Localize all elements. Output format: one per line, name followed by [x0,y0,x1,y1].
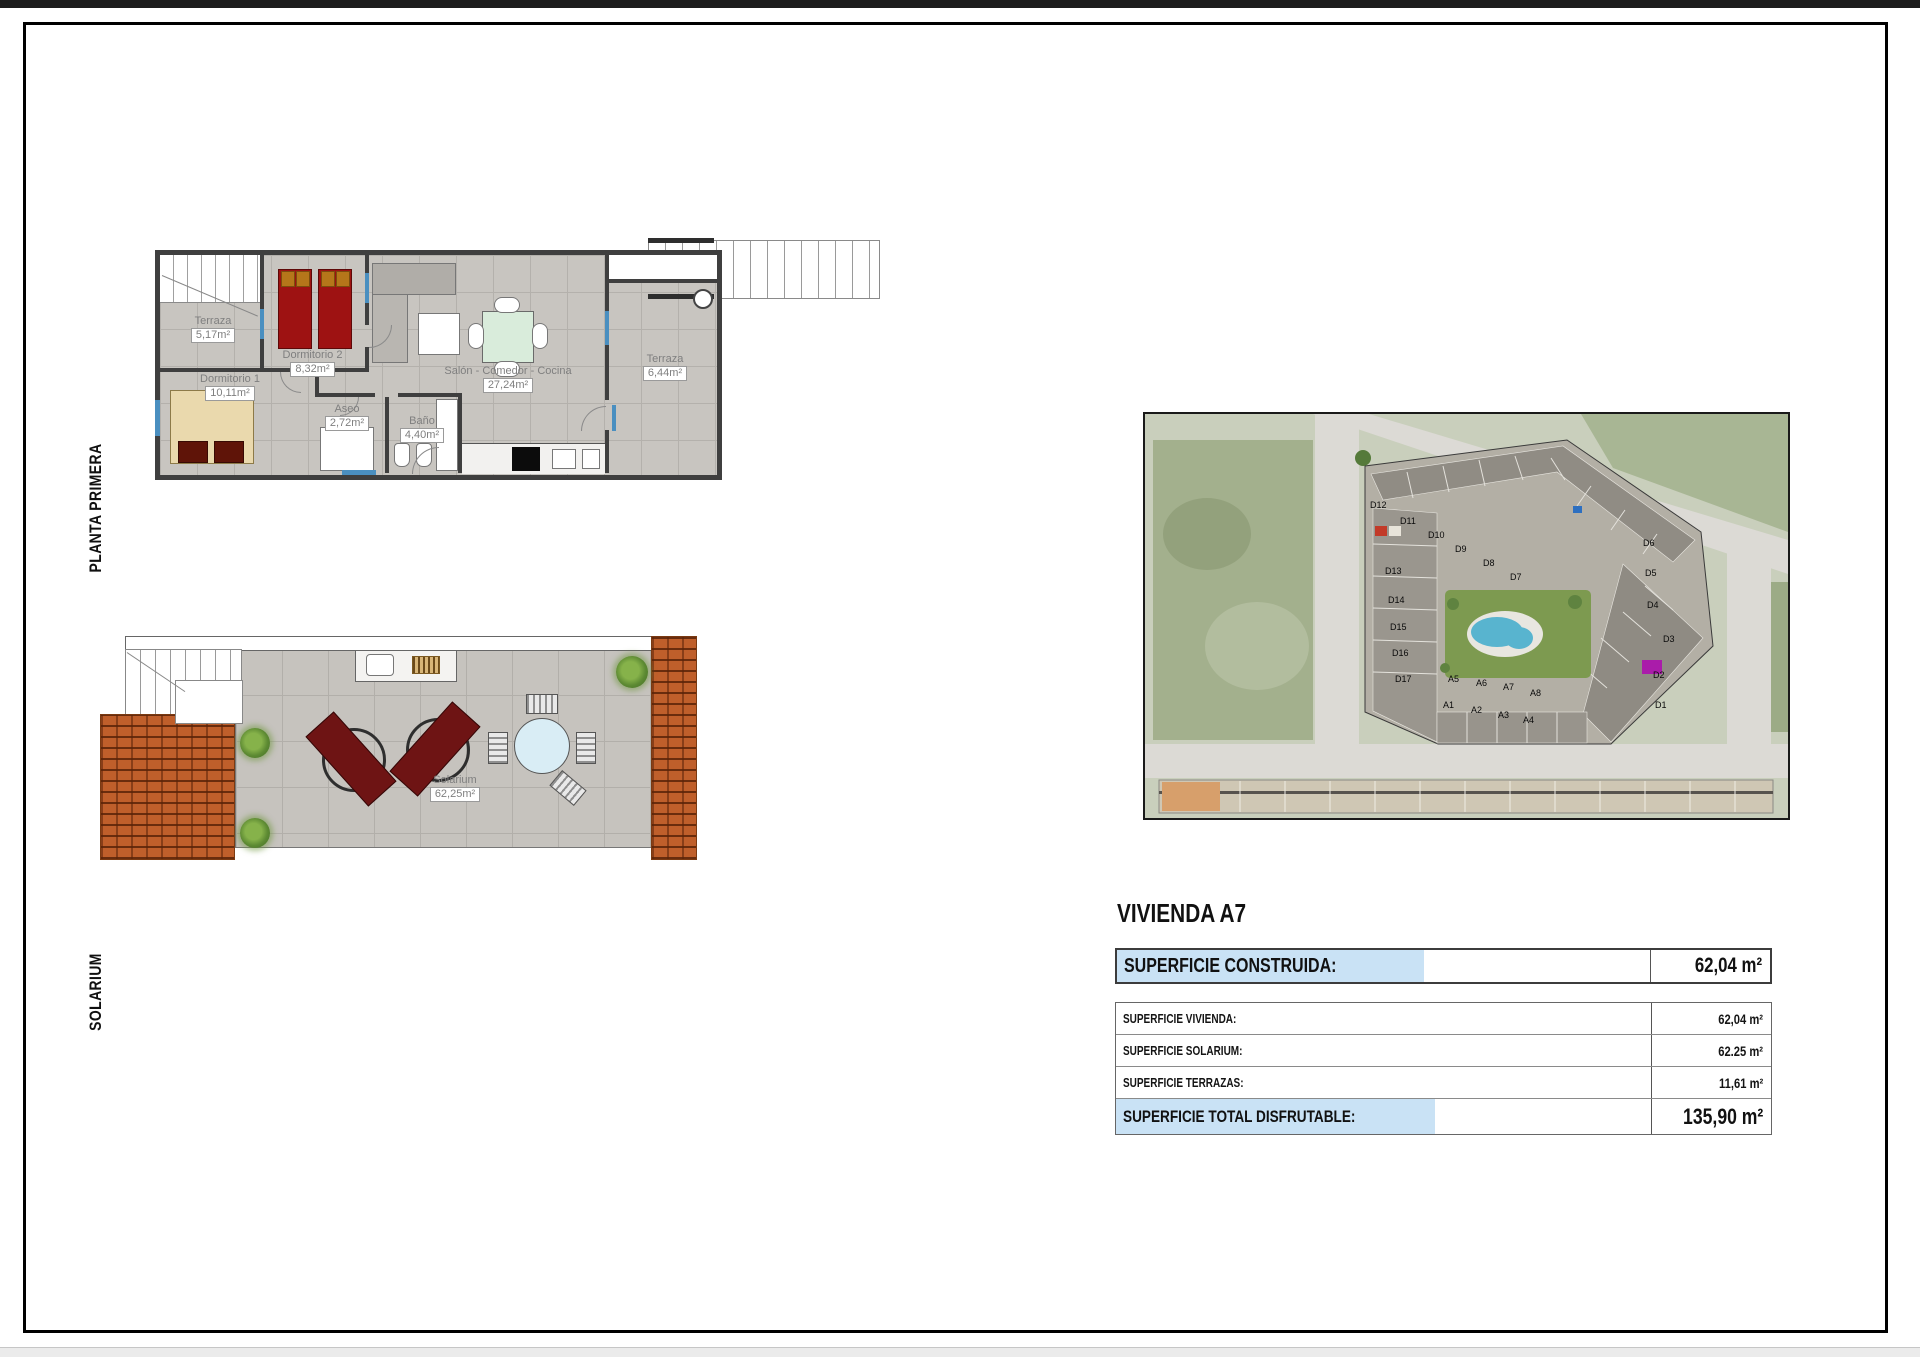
bottom-edge-strip [0,1347,1920,1357]
map-unit-label: D6 [1643,538,1655,548]
map-unit-label: D5 [1645,568,1657,578]
map-unit-label: D11 [1400,516,1416,526]
map-unit-label: D8 [1483,558,1495,568]
dining-chair [532,323,548,349]
row-label: SUPERFICIE TERRAZAS: [1116,1067,1651,1098]
ceiling-light [693,289,713,309]
pillow [178,441,208,463]
room-label-aseo: Aseo 2,72m² [302,403,392,431]
terraza-setback [609,255,717,279]
floorplan-solarium: Solarium 62,25m² [100,636,695,858]
table-row-vivienda: SUPERFICIE VIVIENDA: 62,04 m² [1116,1003,1771,1035]
roof-tiles-left [100,714,235,860]
superficie-construida-label: SUPERFICIE CONSTRUIDA: [1117,950,1424,982]
stove [512,447,540,471]
table-row-total: SUPERFICIE TOTAL DISFRUTABLE: 135,90 m² [1116,1099,1771,1134]
row-value: 11,61 m² [1651,1067,1771,1098]
roof-tiles-right [651,636,697,860]
map-unit-label: A1 [1443,700,1454,710]
map-unit-label: D9 [1455,544,1467,554]
pillow [321,271,335,287]
room-label-dormitorio1: Dormitorio 1 10,11m² [170,373,290,401]
wall [398,393,462,397]
room-label-salon: Salón - Comedor - Cocina 27,24m² [418,365,598,393]
shower [320,427,374,471]
total-label: SUPERFICIE TOTAL DISFRUTABLE: [1116,1099,1435,1134]
window [260,309,264,339]
summary-title: VIVIENDA A7 [1117,898,1278,929]
room-label-terraza2: Terraza 6,44m² [620,353,710,381]
chair [526,694,558,714]
map-unit-label: D17 [1395,674,1412,684]
room-label-terraza1: Terraza 5,17m² [168,315,258,343]
superficie-construida-row: SUPERFICIE CONSTRUIDA: 62,04 m² [1115,948,1772,984]
wall [609,279,717,283]
top-edge-strip [0,0,1920,8]
wall [605,430,609,473]
map-unit-label: A3 [1498,710,1509,720]
window [342,470,376,475]
map-unit-label: D12 [1370,500,1387,510]
table-row-solarium: SUPERFICIE SOLARIUM: 62.25 m² [1116,1035,1771,1067]
row-value: 62.25 m² [1651,1035,1771,1066]
stair-landing-edge [648,238,714,243]
planta-primera-label: PLANTA PRIMERA [86,444,106,573]
pillow [296,271,310,287]
stairs-landing [175,680,243,724]
map-unit-label: D14 [1388,595,1405,605]
window [365,273,369,303]
map-unit-label: A2 [1471,705,1482,715]
row-label: SUPERFICIE SOLARIUM: [1116,1035,1651,1066]
map-unit-label: D3 [1663,634,1675,644]
dishwasher [582,449,600,469]
chair [488,732,508,764]
dining-chair [494,297,520,313]
window-door-terraza [612,405,616,431]
pillow [336,271,350,287]
room-label-bano: Baño 4,40m² [382,415,462,443]
dining-table [482,311,534,363]
solarium-section-label: SOLARIUM [86,953,106,1031]
map-unit-label: D10 [1428,530,1445,540]
plant [616,656,648,688]
sink [552,449,576,469]
row-spacer [1435,1099,1651,1134]
map-unit-label: D1 [1655,700,1667,710]
outdoor-sink [366,654,394,676]
window [155,400,160,436]
pillow [214,441,244,463]
door-arc-terraza [581,406,606,431]
aerial-site-map: D12 D11 D10 D9 D8 D7 D13 D14 D15 D16 D17… [1143,412,1790,820]
map-unit-label-a7: A7 [1503,682,1514,692]
window [605,311,609,345]
plant [240,728,270,758]
table-row-terrazas: SUPERFICIE TERRAZAS: 11,61 m² [1116,1067,1771,1099]
map-unit-label: A6 [1476,678,1487,688]
map-unit-label: D15 [1390,622,1407,632]
coffee-table [418,313,460,355]
toilet [394,443,410,467]
map-unit-label: A5 [1448,674,1459,684]
chair [576,732,596,764]
sofa-chaise [372,263,456,295]
barbecue-grill [412,656,440,674]
total-value: 135,90 m² [1651,1099,1771,1134]
pillow [281,271,295,287]
row-label: SUPERFICIE VIVIENDA: [1116,1003,1651,1034]
map-unit-label: D13 [1385,566,1402,576]
row-spacer [1424,950,1650,982]
round-table [514,718,570,774]
floorplan-planta-primera: Terraza 5,17m² Dormitorio 2 8,32m² Dormi… [155,250,722,480]
plant [240,818,270,848]
map-unit-label: D4 [1647,600,1659,610]
row-value: 62,04 m² [1651,1003,1771,1034]
plan-sheet: PLANTA PRIMERA SOLARIUM [0,0,1920,1357]
map-unit-label: D7 [1510,572,1522,582]
map-unit-label: A4 [1523,715,1534,725]
map-unit-label: A8 [1530,688,1541,698]
map-unit-label: D16 [1392,648,1409,658]
map-unit-label: D2 [1653,670,1665,680]
superficie-construida-value: 62,04 m² [1650,950,1770,982]
aerial-map-graphic [1145,414,1788,818]
dining-chair [468,323,484,349]
surface-detail-table: SUPERFICIE VIVIENDA: 62,04 m² SUPERFICIE… [1115,1002,1772,1135]
room-label-solarium: Solarium 62,25m² [400,774,510,802]
